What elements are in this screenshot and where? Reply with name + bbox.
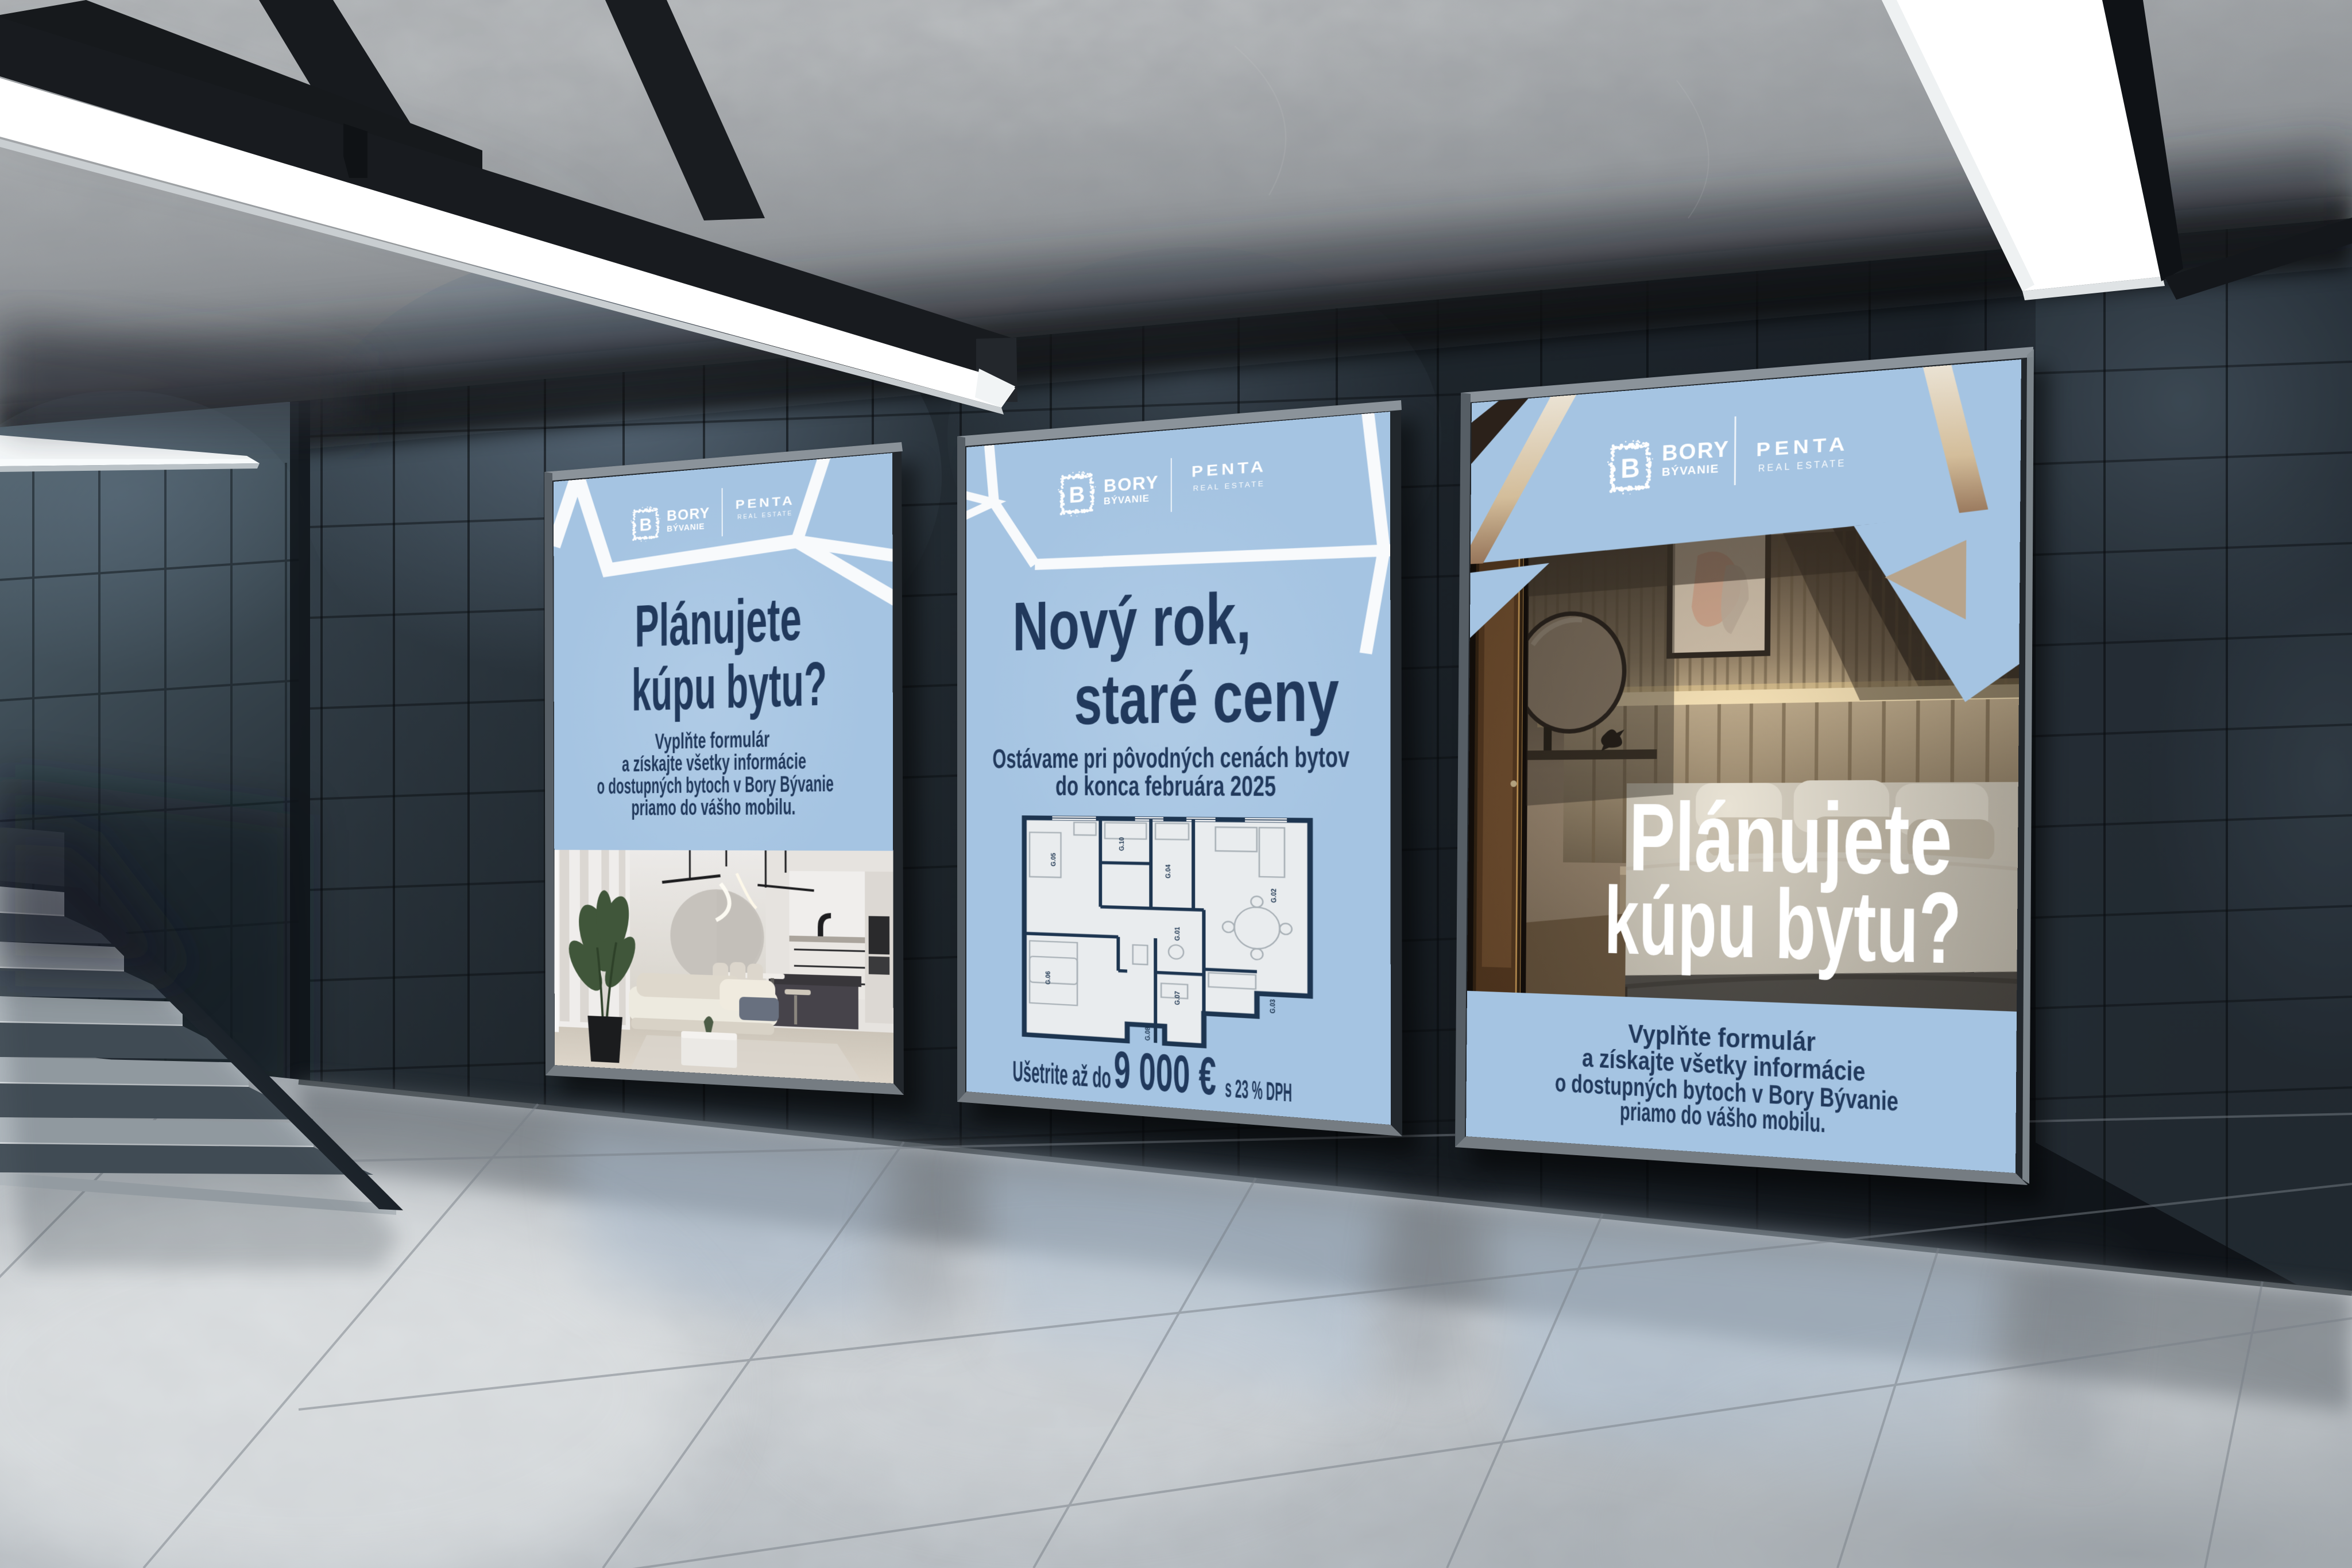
svg-text:G.02: G.02: [1270, 888, 1278, 903]
svg-text:B: B: [1620, 452, 1640, 484]
svg-text:B: B: [639, 514, 652, 535]
svg-text:G.03: G.03: [1269, 999, 1277, 1014]
svg-text:G.07: G.07: [1174, 991, 1182, 1005]
svg-text:G.06: G.06: [1045, 971, 1052, 985]
svg-text:G.10: G.10: [1118, 837, 1125, 851]
svg-text:B: B: [1069, 482, 1085, 508]
svg-text:G.05: G.05: [1050, 853, 1058, 867]
svg-text:G.08: G.08: [1144, 1026, 1152, 1041]
svg-text:G.01: G.01: [1174, 926, 1182, 941]
svg-text:G.04: G.04: [1165, 864, 1173, 878]
